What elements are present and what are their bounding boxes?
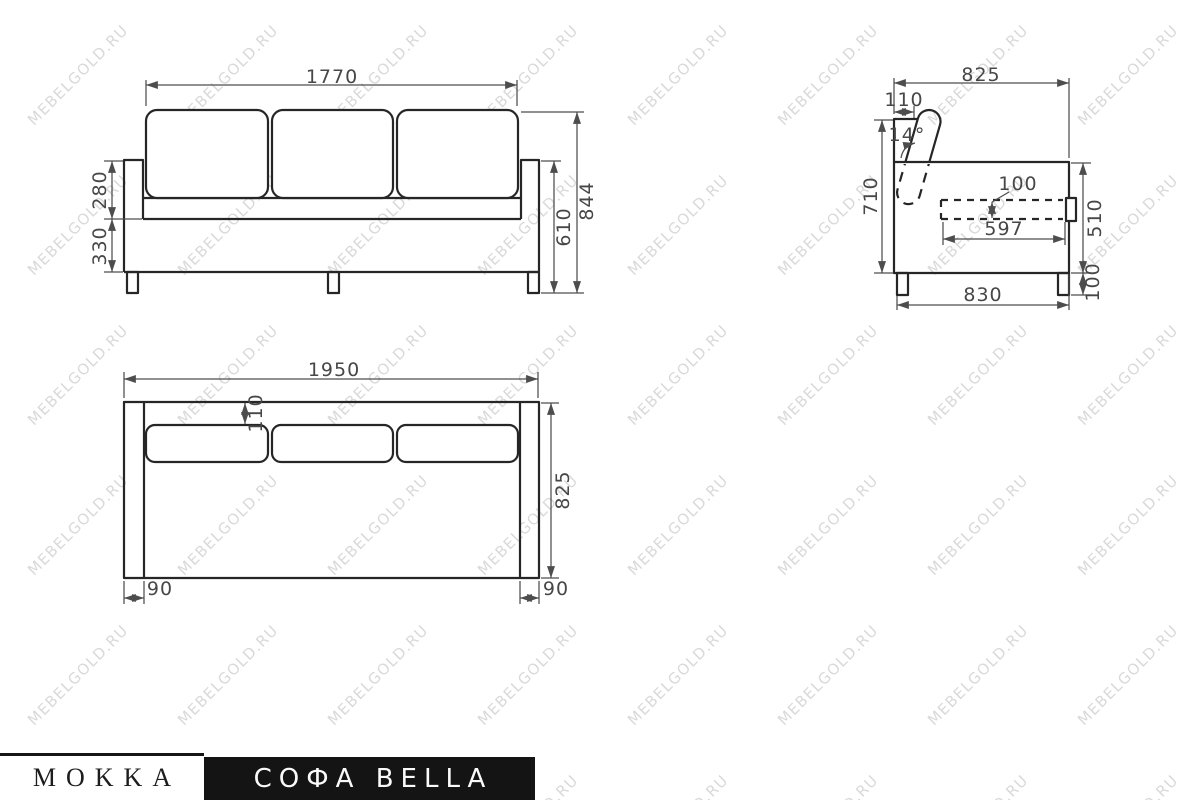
- brand-name: MOKKA: [33, 763, 181, 793]
- brand-logo: MOKKA: [0, 753, 204, 800]
- top-cushion-1: [146, 425, 268, 462]
- side-body: [894, 162, 1069, 273]
- technical-drawing: [0, 0, 1200, 753]
- top-cushion-2: [272, 425, 393, 462]
- side-leg-front: [897, 273, 908, 295]
- product-title-block: СОФА BELLA: [204, 757, 535, 800]
- brand-bar: MOKKA СОФА BELLA: [0, 753, 1200, 800]
- side-view: [874, 78, 1091, 310]
- front-cushion-1: [146, 110, 268, 198]
- front-view: [104, 80, 584, 293]
- side-leg-back: [1058, 273, 1069, 295]
- front-armrest-left: [124, 160, 143, 272]
- top-cushion-3: [397, 425, 518, 462]
- side-latch: [1066, 198, 1076, 221]
- front-cushion-3: [397, 110, 518, 198]
- front-leg-left: [127, 272, 138, 293]
- side-armrest-top: [894, 119, 917, 162]
- sofa-dimension-sheet: MEBELGOLD.RUMEBELGOLD.RUMEBELGOLD.RUMEBE…: [0, 0, 1200, 800]
- front-cushion-2: [272, 110, 393, 198]
- top-view: [124, 372, 559, 604]
- product-title: СОФА BELLA: [254, 764, 493, 794]
- front-armrest-right: [521, 160, 539, 272]
- front-leg-right: [528, 272, 539, 293]
- front-leg-middle: [328, 272, 339, 293]
